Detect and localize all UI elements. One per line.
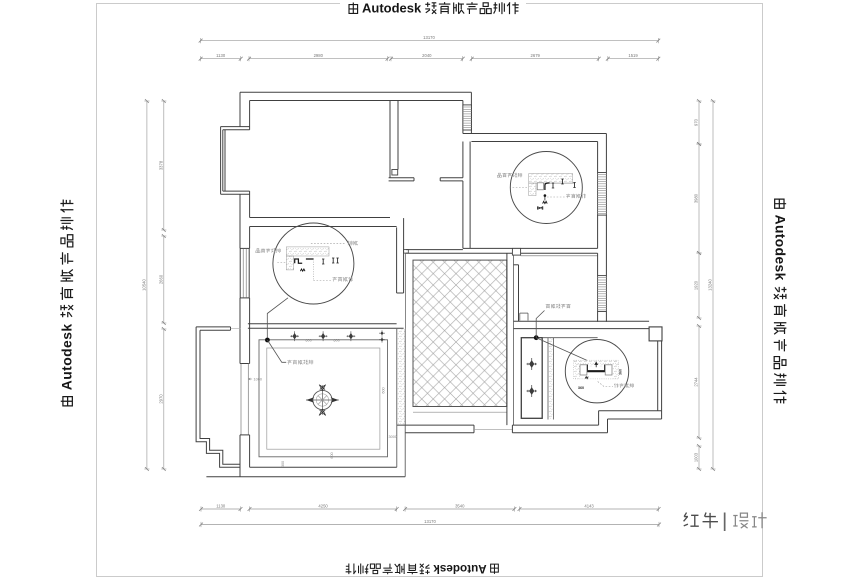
- svg-text:Autodesk: Autodesk: [59, 323, 75, 390]
- svg-text:600: 600: [382, 387, 386, 393]
- svg-text:3000: 3000: [389, 435, 397, 439]
- svg-text:Autodesk: Autodesk: [773, 215, 788, 281]
- svg-text:1130: 1130: [216, 503, 226, 508]
- svg-text:2980: 2980: [314, 53, 324, 58]
- svg-text:4250: 4250: [318, 503, 328, 508]
- svg-text:970: 970: [694, 118, 699, 126]
- svg-text:360: 360: [619, 369, 623, 375]
- svg-text:1920: 1920: [694, 280, 699, 290]
- svg-text:300: 300: [281, 461, 285, 467]
- svg-text:10540: 10540: [142, 279, 147, 291]
- svg-text:360: 360: [578, 386, 584, 390]
- svg-text:2660: 2660: [158, 274, 163, 284]
- svg-text:4143: 4143: [584, 503, 594, 508]
- svg-text:2679: 2679: [531, 53, 541, 58]
- svg-text:1519: 1519: [628, 53, 638, 58]
- svg-text:13170: 13170: [423, 35, 435, 40]
- svg-text:1003: 1003: [694, 452, 699, 462]
- svg-text:600: 600: [333, 339, 339, 343]
- svg-text:3378: 3378: [158, 160, 163, 170]
- svg-text:13170: 13170: [424, 519, 436, 524]
- svg-text:2040: 2040: [422, 53, 432, 58]
- svg-text:Autodesk: Autodesk: [433, 562, 487, 575]
- svg-text:1000: 1000: [254, 378, 262, 382]
- svg-text:600: 600: [305, 339, 311, 343]
- svg-text:13240: 13240: [708, 279, 713, 291]
- svg-text:2744: 2744: [694, 377, 699, 387]
- svg-text:Autodesk: Autodesk: [362, 1, 422, 16]
- svg-text:2970: 2970: [158, 394, 163, 404]
- svg-text:600: 600: [330, 452, 334, 458]
- svg-text:3540: 3540: [455, 503, 465, 508]
- svg-text:1130: 1130: [216, 53, 226, 58]
- svg-text:3980: 3980: [694, 193, 699, 203]
